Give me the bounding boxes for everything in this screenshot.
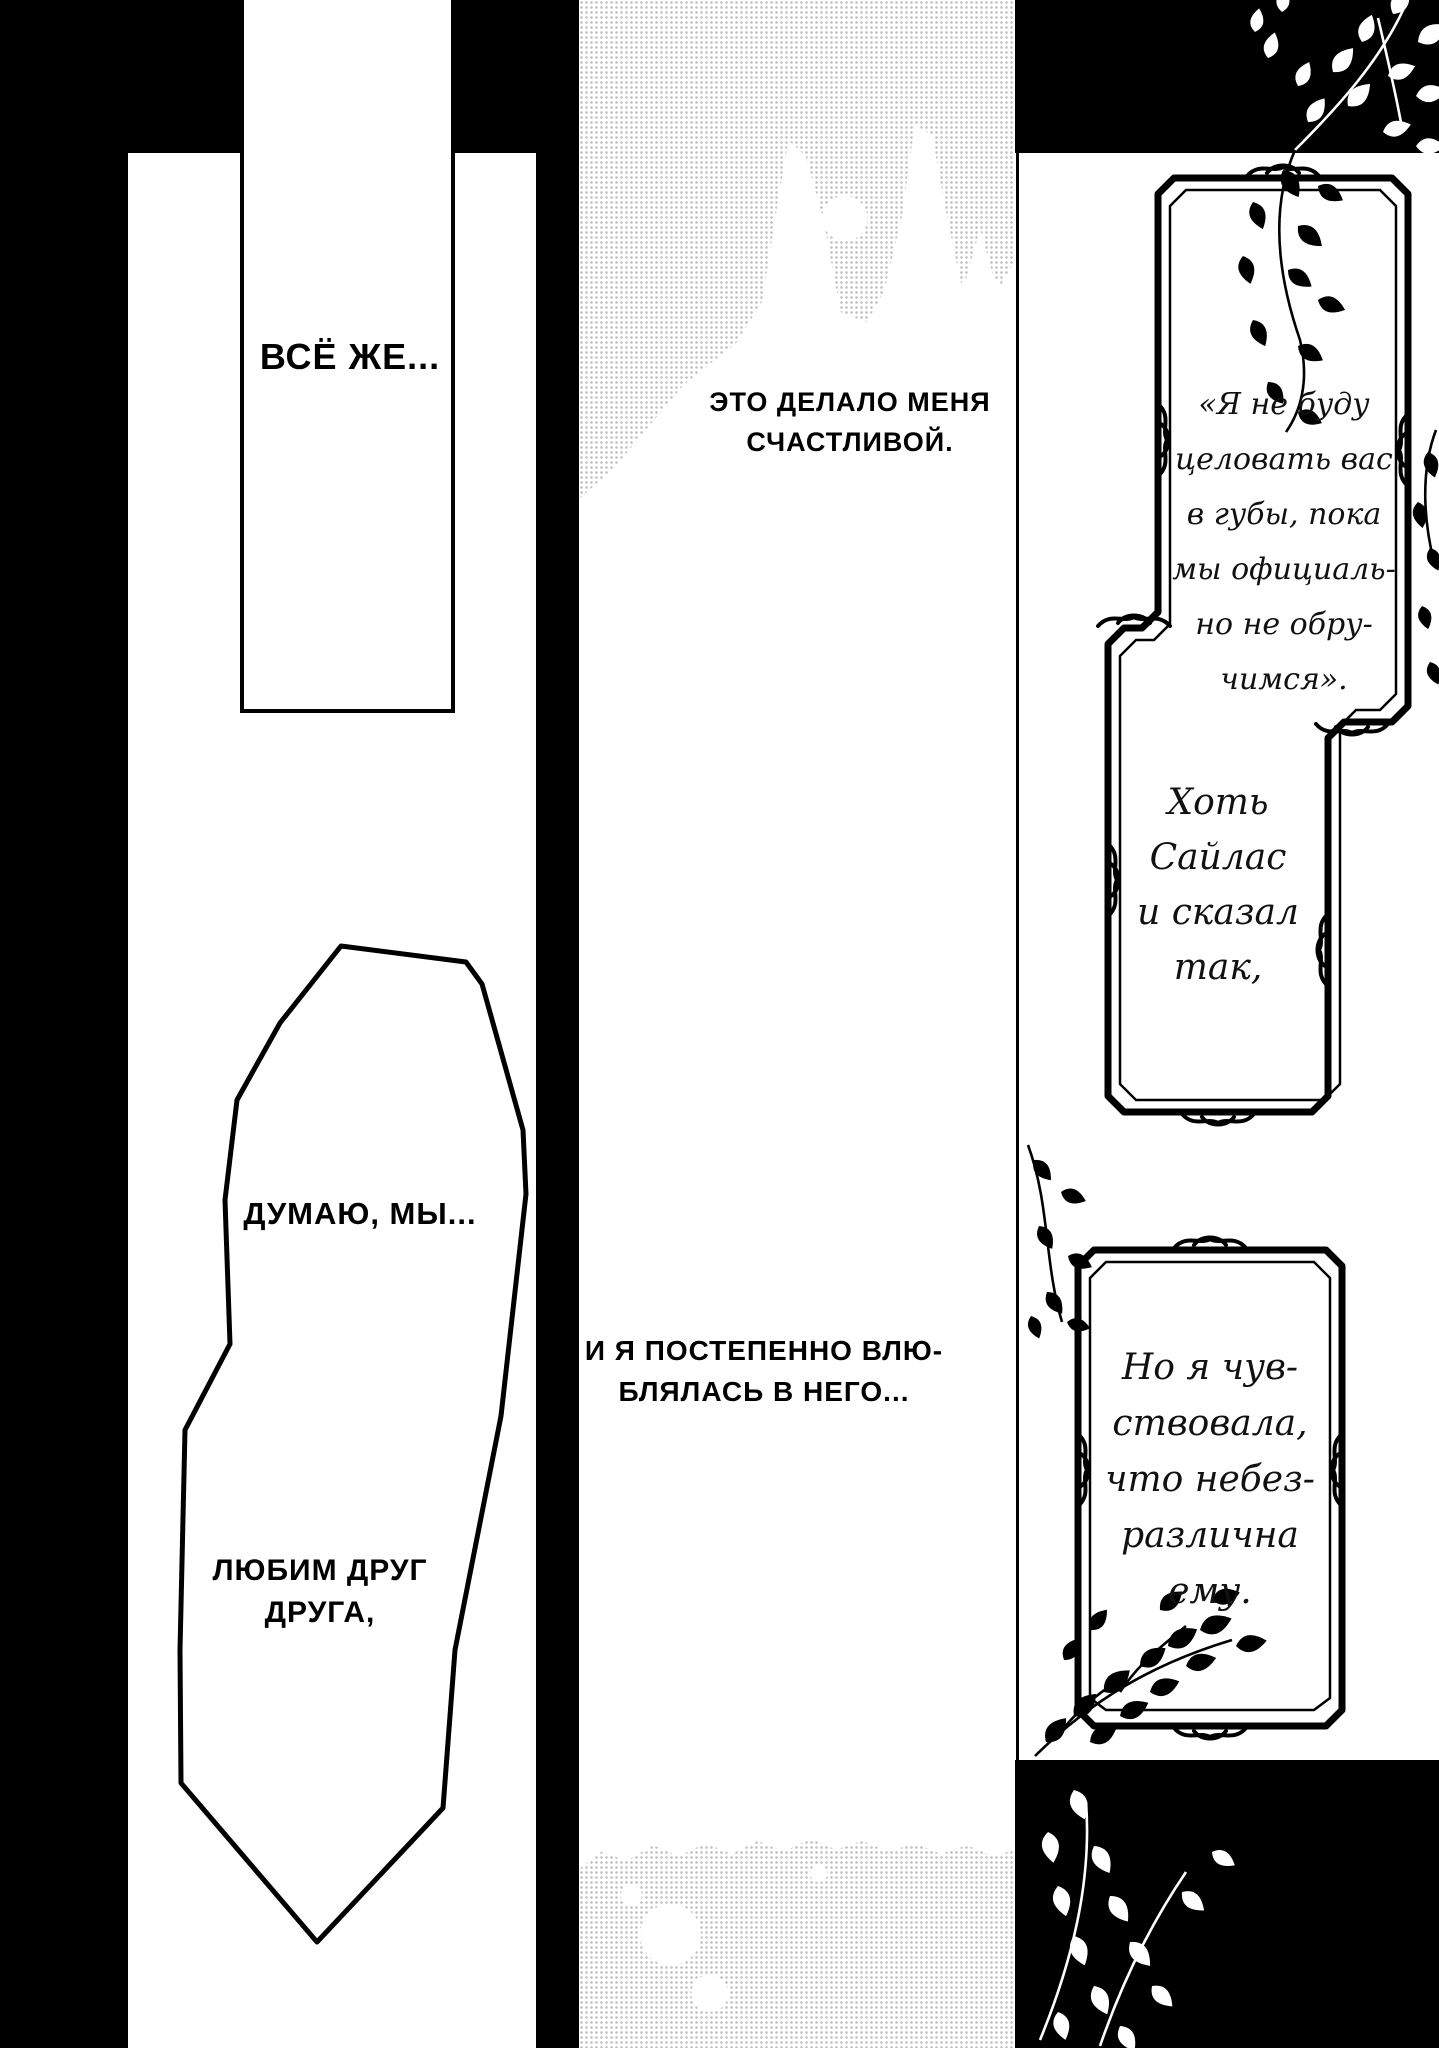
caption-made-me-happy: ЭТО ДЕЛАЛО МЕНЯ СЧАСТЛИВОЙ. <box>650 382 1050 462</box>
narration-line: что небез- <box>1090 1452 1330 1508</box>
narration-box-2-text: Но я чув- ствовала, что небез- различна … <box>1090 1340 1330 1620</box>
narration-line: так, <box>1108 940 1328 995</box>
right-white-panel <box>1015 0 1439 2048</box>
caption-line: И Я ПОСТЕПЕННО ВЛЮ- <box>579 1330 949 1371</box>
right-top-black-band <box>1015 0 1439 153</box>
manga-page: ВСЁ ЖЕ... ЭТО ДЕЛАЛО МЕНЯ СЧАСТЛИВОЙ. ДУ… <box>0 0 1439 2048</box>
quote-line: чимся». <box>1170 652 1398 707</box>
halftone-cloud-bottom <box>579 1830 1015 2048</box>
narration-line: Хоть <box>1108 775 1328 830</box>
quote-box-text: «Я не буду целовать вас в губы, пока мы … <box>1170 377 1398 707</box>
middle-white-panel <box>579 0 1015 2048</box>
bubble-caption-dumayu: ДУМАЮ, МЫ... <box>240 1196 480 1232</box>
narration-line: ему. <box>1090 1564 1330 1620</box>
narration-line: Сайлас <box>1108 830 1328 885</box>
caption-line: ЛЮБИМ ДРУГ <box>200 1550 440 1592</box>
caption-falling-in-love: И Я ПОСТЕПЕННО ВЛЮ- БЛЯЛАСЬ В НЕГО... <box>579 1330 949 1412</box>
narration-line: различна <box>1090 1508 1330 1564</box>
caption-line: СЧАСТЛИВОЙ. <box>650 422 1050 462</box>
quote-line: «Я не буду <box>1170 377 1398 432</box>
quote-line: целовать вас <box>1170 432 1398 487</box>
caption-line: БЛЯЛАСЬ В НЕГО... <box>579 1371 949 1412</box>
narration-box-1-text: Хоть Сайлас и сказал так, <box>1108 775 1328 995</box>
narration-line: и сказал <box>1108 885 1328 940</box>
quote-line: но не обру- <box>1170 597 1398 652</box>
bubble-caption-lyubim: ЛЮБИМ ДРУГ ДРУГА, <box>200 1550 440 1634</box>
narration-line: Но я чув- <box>1090 1340 1330 1396</box>
caption-line: ЭТО ДЕЛАЛО МЕНЯ <box>650 382 1050 422</box>
caption-vsyo-zhe: ВСЁ ЖЕ... <box>245 336 455 378</box>
quote-line: мы официаль- <box>1170 542 1398 597</box>
caption-line: ДРУГА, <box>200 1592 440 1634</box>
quote-line: в губы, пока <box>1170 487 1398 542</box>
narration-line: ствовала, <box>1090 1396 1330 1452</box>
right-bottom-black-band <box>1015 1760 1439 2048</box>
